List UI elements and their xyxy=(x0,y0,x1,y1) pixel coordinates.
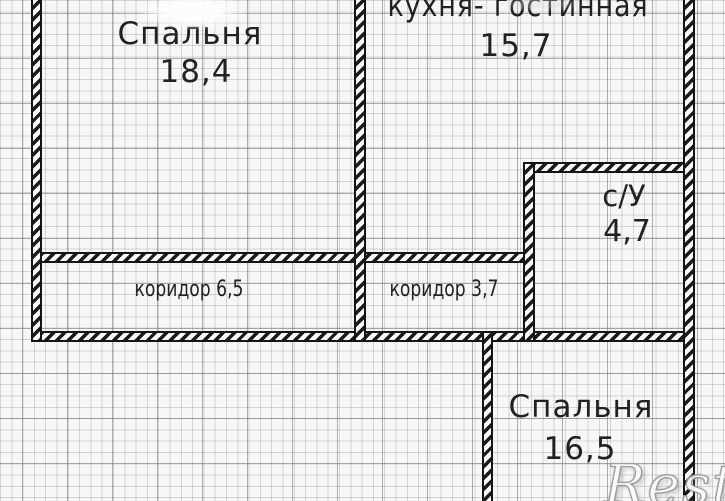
room-area-bedroom-top: 18,4 xyxy=(159,57,232,88)
room-name-bedroom-bottom: Спальня xyxy=(509,392,654,423)
room-label-corridor-right: коридор 3,7 xyxy=(390,279,499,301)
wall-bedroom-bottom-left xyxy=(482,331,493,501)
wall-left-outer xyxy=(31,0,42,342)
corridor-left-name: коридор xyxy=(135,277,211,302)
wall-bathroom-left xyxy=(523,162,535,342)
room-name-kitchen-living: кухня- гостинная xyxy=(387,0,648,22)
wall-bathroom-top xyxy=(523,162,695,173)
corridor-right-area: 3,7 xyxy=(471,277,498,302)
floor-plan: Спальня 18,4 кухня- гостинная 15,7 с/У 4… xyxy=(0,0,725,501)
corridor-right-name: коридор xyxy=(390,277,466,302)
room-area-kitchen-living: 15,7 xyxy=(479,31,552,62)
corridor-left-area: 6,5 xyxy=(216,277,243,302)
room-label-corridor-left: коридор 6,5 xyxy=(135,279,244,301)
room-area-bathroom: 4,7 xyxy=(603,217,651,247)
room-name-bedroom-top: Спальня xyxy=(118,19,263,50)
watermark-restate: Restate xyxy=(604,458,725,501)
wall-right-outer xyxy=(683,0,695,501)
room-name-bathroom: с/У xyxy=(602,182,645,211)
wall-mid-vertical xyxy=(354,0,366,342)
wall-corridor-top xyxy=(31,252,535,263)
